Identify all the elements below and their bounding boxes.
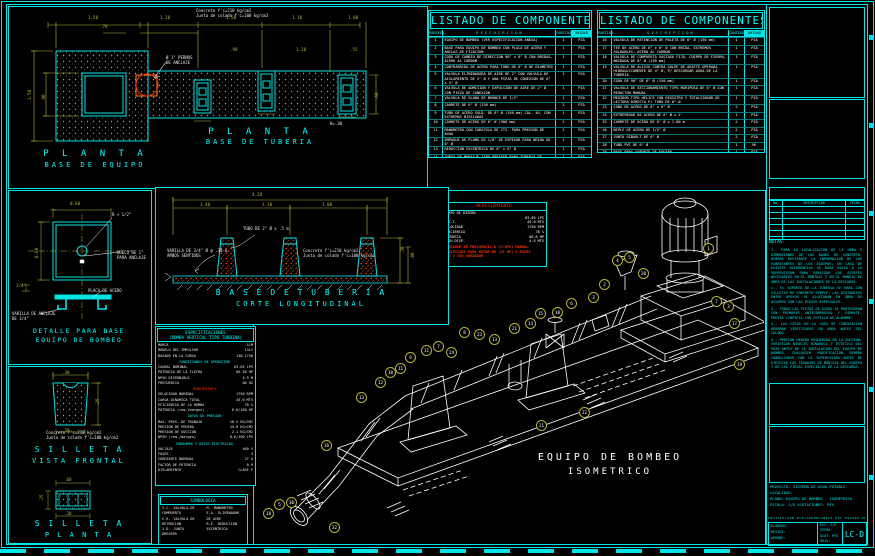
cell-partida: 18 xyxy=(598,55,612,64)
balloon-number: 8 xyxy=(463,330,466,335)
balloon-callout: 10 xyxy=(385,367,396,378)
notes-heading: NOTAS: xyxy=(769,240,785,245)
dimension-label: 1.10 xyxy=(292,15,302,20)
cell-partida: 20 xyxy=(598,79,612,86)
annotation-label: DE 3/4" xyxy=(12,317,29,322)
annotation-label: AMBOS SENTIDOS xyxy=(167,254,201,259)
spec-label: POTENCIA (req./margen) xyxy=(158,408,204,413)
dimension-label: .30 xyxy=(62,428,70,433)
dimension-label: .70 xyxy=(400,246,405,254)
notes-list: 1.- PARA LA LOCALIZACION DE LA OBRA Y DI… xyxy=(768,246,865,380)
sidebar-box-3 xyxy=(769,383,865,425)
corte-title: B A S E D E T U B E R I A xyxy=(155,288,447,297)
balloon-number: 13 xyxy=(492,337,497,342)
balloon-callout: 18 xyxy=(263,508,274,519)
balloon-number: 11 xyxy=(398,366,403,371)
balloon-callout: 7 xyxy=(711,296,722,307)
rev-col-desc: DESCRIPCION xyxy=(783,201,846,206)
logo-box-1 xyxy=(769,7,865,98)
dimension-label: .25 xyxy=(39,494,44,502)
rev-fecha xyxy=(846,237,864,240)
cell-partida: 1 xyxy=(429,38,443,45)
cell-unidad: PZA xyxy=(745,105,764,112)
rev-desc xyxy=(783,225,846,230)
balloon-callout: 16 xyxy=(321,440,332,451)
rev-desc xyxy=(783,213,846,218)
balloon-callout: 24 xyxy=(446,347,457,358)
cell-unidad: PZA xyxy=(745,79,764,86)
cell-unidad: PZA xyxy=(572,55,591,64)
table-row: 8 CARRETE DE 6" Ø (150 mm) 2 PZA xyxy=(429,102,591,110)
balloon-callout: 1 xyxy=(703,243,714,254)
cell-unidad: PZA xyxy=(572,38,591,45)
silleta-front-subtitle: VISTA FRONTAL xyxy=(8,457,150,465)
component-table-2: LISTADO DE COMPONENTES PARTIDA D E S C R… xyxy=(597,10,765,153)
cell-unidad: PZA xyxy=(745,113,764,120)
table-row: 14 JUNTA DE MONTAJE TIPO DRESSER PARA TU… xyxy=(429,154,591,158)
table-row: 16 VALVULA DE RETENCION DE PALETA DE 6" … xyxy=(598,37,764,45)
revestimiento-rows: PUNTO DE DISEÑO Q 63.65 LPS C.D.T. 45.0 … xyxy=(442,211,546,244)
cell-descripcion: JUNTA GIBAULT DE 6" Ø xyxy=(612,135,729,142)
annotation-label: TUBO DE 2" Ø x .5 m. xyxy=(243,227,291,232)
table-row: 17 TEE DE ACERO DE 6" x 6" Ø CON BRIDA, … xyxy=(598,45,764,55)
table-row: 12 EMPAQUE DE PLOMO DE 1/8" DE ESPESOR P… xyxy=(429,137,591,147)
cell-cantidad: 2 xyxy=(729,128,745,135)
legend-abbr: J.D. xyxy=(162,527,170,531)
balloon-number: 19 xyxy=(737,362,742,367)
note-paragraph: 5.- PRESION MINIMA REQUERIDA EN LA SUCCI… xyxy=(771,338,862,370)
cell-cantidad: 1 xyxy=(729,86,745,95)
table-row: 13 REDUCCION EXCENTRICA DE 8" x 6" Ø 1 P… xyxy=(429,146,591,154)
title-block: ELABORO:REVISO:APROBO: ESC: S/EFECHA:ACO… xyxy=(768,522,867,546)
silleta-front-title: S I L L E T A xyxy=(8,445,150,454)
balloon-number: 1 xyxy=(707,246,710,251)
balloon-callout: 10 xyxy=(552,307,563,318)
balloon-callout: 23 xyxy=(474,329,485,340)
balloon-callout: 13 xyxy=(489,334,500,345)
legend-row: V.C. VALVULA DE COMPUERTA xyxy=(160,506,202,517)
spec-label: CONSUMOS Y DATOS ELECTRICOS xyxy=(176,442,233,447)
cell-cantidad: 1 xyxy=(556,138,572,147)
cell-cantidad: 1 xyxy=(556,72,572,85)
dimension-label: .90 xyxy=(230,47,238,52)
detalle-subtitle: EQUIPO DE BOMBEO xyxy=(8,336,150,344)
annotation-label: R + 1/2" xyxy=(112,213,131,218)
revision-row xyxy=(770,218,864,224)
spec-value: 13B-1750 xyxy=(236,354,253,359)
cell-descripcion: VALVULA ELIMINADORA DE AIRE DE 2" CON VA… xyxy=(443,72,556,85)
cell-partida: 11 xyxy=(429,128,443,137)
legend-abbr: M. xyxy=(207,506,211,510)
annotation-label: H=.30 xyxy=(330,122,342,127)
cell-descripcion: CONO DE ACERO DE 8" x 6" Ø xyxy=(612,105,729,112)
table-row: 10 CARRETE DE ACERO DE 6" Ø (900 mm) 2 P… xyxy=(429,119,591,127)
note-paragraph: 2.- EL SOPORTE DE LA TUBERIA SE HARA CON… xyxy=(771,286,862,304)
col-partida: PARTIDA xyxy=(429,30,443,36)
cell-partida: 23 xyxy=(598,105,612,112)
revision-row xyxy=(770,212,864,218)
rev-no xyxy=(770,219,783,224)
balloon-number: 4 xyxy=(616,258,619,263)
legend-panel: SIMBOLOGIA V.C. VALVULA DE COMPUERTA V.R… xyxy=(158,494,248,545)
cell-cantidad: 1 xyxy=(729,38,745,45)
legend-row: J.D. JUNTA DRESSER xyxy=(160,527,202,538)
project-info-line: ESCALA: S/E ACOTACIONES: MTS xyxy=(768,502,865,508)
cell-descripcion: TUBO PVC DE 6" Ø xyxy=(612,143,729,150)
cell-descripcion: EMPAQUE DE PLOMO DE 1/8" DE ESPESOR PARA… xyxy=(443,138,556,147)
revestimiento-title: REVESTIMIENTO xyxy=(442,203,546,211)
balloon-callout: 20 xyxy=(638,268,649,279)
cell-partida: 25 xyxy=(598,120,612,127)
cell-unidad: PZA xyxy=(745,86,764,95)
sidebar-header-bar xyxy=(769,187,865,200)
revision-table: No. DESCRIPCION FECHA xyxy=(769,200,865,240)
rev-fecha xyxy=(846,213,864,218)
cell-partida: 28 xyxy=(598,143,612,150)
balloon-number: 7 xyxy=(715,299,718,304)
cell-cantidad: 1 xyxy=(556,38,572,45)
legend-text: MANOMETRO xyxy=(214,506,233,510)
table-row: 22 MEDIDOR TIPO HELICE CON REGISTRO Y TO… xyxy=(598,95,764,105)
dimension-label: 1.50 xyxy=(226,15,236,20)
balloon-number: 12 xyxy=(378,380,383,385)
logo-box-2 xyxy=(769,99,865,179)
legend-row: E.A. ELIMINADOR DE AIRE xyxy=(205,511,247,522)
revest-value: 4.5 MTS xyxy=(529,239,544,244)
note-paragraph: 1.- PARA LA LOCALIZACION DE LA OBRA Y DI… xyxy=(771,248,862,284)
cell-cantidad: 1 xyxy=(729,55,745,64)
title-block-row: APROBO: xyxy=(769,535,817,541)
table-row: 21 VALVULA DE SECCIONAMIENTO TIPO MARIPO… xyxy=(598,85,764,95)
spec-label: FRECUENCIA xyxy=(158,381,179,386)
component-table-2-body: 16 VALVULA DE RETENCION DE PALETA DE 6" … xyxy=(598,37,764,153)
note-paragraph: 4.- LAS COTAS DE LA LOSA DE CIMENTACION … xyxy=(771,322,862,336)
table-row: 28 TUBO PVC DE 6" Ø 1 ML xyxy=(598,142,764,150)
balloon-number: 2 xyxy=(603,282,606,287)
annotation-label: PARA ANCLAJE xyxy=(117,256,146,261)
cell-unidad: PZA xyxy=(745,55,764,64)
spec-label: RENDIMIENTO xyxy=(193,387,216,392)
discipline-strip: INSTALACION ELECTROMECANICA DEL EQUIPO D… xyxy=(768,516,865,520)
cell-descripcion: CARRETE DE ACERO DE 6" Ø x 1.00 m xyxy=(612,120,729,127)
cell-partida: 16 xyxy=(598,38,612,45)
dimension-label: .90 xyxy=(41,94,46,102)
table-row: 7 VALVULA DE GLOBO DE BRONCE DE 1/2" 1 P… xyxy=(429,95,591,103)
table-row: 2 BASE PARA EQUIPO DE BOMBEO CON PLACA D… xyxy=(429,45,591,55)
cell-partida: 22 xyxy=(598,96,612,105)
component-table-1: LISTADO DE COMPONENTES PARTIDA D E S C R… xyxy=(428,10,592,158)
cell-unidad: PZA xyxy=(572,128,591,137)
legend-abbr: V.C. xyxy=(162,506,170,510)
cell-unidad: PZA xyxy=(745,65,764,78)
rev-col-fecha: FECHA xyxy=(846,201,864,206)
spec-row: POTENCIA (req./margen) 8.6/100 HP xyxy=(156,408,255,413)
table-row: 26 NIPLE DE ACERO DE 1/2" Ø 2 PZA xyxy=(598,127,764,135)
balloon-number: 3 xyxy=(727,304,730,309)
cell-cantidad: 2 xyxy=(729,135,745,142)
rev-no xyxy=(770,231,783,236)
cell-unidad: PZA xyxy=(572,65,591,72)
rev-desc xyxy=(783,207,846,212)
cell-descripcion: MEDIDOR TIPO HELICE CON REGISTRO Y TOTAL… xyxy=(612,96,729,105)
balloon-number: 32 xyxy=(332,525,337,530)
cell-partida: 17 xyxy=(598,46,612,55)
dimension-label: .20 xyxy=(64,511,72,516)
dimension-label: .60 xyxy=(64,477,72,482)
cell-cantidad: 1 xyxy=(556,86,572,95)
cell-partida: 8 xyxy=(429,103,443,110)
annotation-label: PLACA DE ACERO xyxy=(88,289,122,294)
legend-row: V.R. VALVULA DE RETENCION xyxy=(160,517,202,528)
cell-descripcion: VALVULA DE RETENCION DE PALETA DE 6" Ø (… xyxy=(612,38,729,45)
spec-value: 8.6/100 LPS xyxy=(230,435,253,440)
legend-row: R.E. REDUCCION EXCENTRICA xyxy=(205,522,247,533)
cell-cantidad: 2 xyxy=(556,128,572,137)
spec-row: AISLAMIENTO CLASE F xyxy=(156,468,255,473)
dimension-label: 3/4" xyxy=(16,283,26,288)
balloon-number: 13 xyxy=(359,395,364,400)
annotation-label: Junta de colado f'c=100 kg/cm2 xyxy=(303,254,375,259)
revision-row xyxy=(770,206,864,212)
balloon-callout: 15 xyxy=(535,308,546,319)
balloon-callout: 21 xyxy=(509,323,520,334)
cell-unidad: PZA xyxy=(572,103,591,110)
balloon-callout: 32 xyxy=(329,522,340,533)
title-block-left: ELABORO:REVISO:APROBO: xyxy=(769,523,818,545)
revest-warning: VARIADOR DE FRECUENCIA A (V/OPS) MANUALM… xyxy=(442,244,546,259)
table-row: 23 CONO DE ACERO DE 8" x 6" Ø 2 PZA xyxy=(598,104,764,112)
annotation-label: DE ANCLAJE xyxy=(166,61,190,66)
cell-partida: 3 xyxy=(429,55,443,64)
isometric-title: EQUIPO DE BOMBEO xyxy=(455,452,765,463)
dimension-label: .70 xyxy=(100,24,108,29)
planta-equipo-subtitle: BASE DE EQUIPO xyxy=(10,161,180,169)
cell-partida: 19 xyxy=(598,65,612,78)
cell-partida: 24 xyxy=(598,113,612,120)
cell-cantidad: 1 xyxy=(729,143,745,150)
title-block-mid: ESC: S/EFECHA:ACOT: MTSHOJA: xyxy=(818,523,843,545)
balloon-number: 3 xyxy=(592,295,595,300)
dimension-label: .30 xyxy=(62,370,70,375)
cell-unidad: PZA xyxy=(572,138,591,147)
cell-cantidad: 1 xyxy=(556,111,572,120)
sheet-code: LC-D xyxy=(843,523,866,545)
dimension-label: 1.10 xyxy=(296,47,306,52)
cell-unidad: PZA xyxy=(572,120,591,127)
cell-partida: 27 xyxy=(598,135,612,142)
rev-desc xyxy=(783,237,846,240)
balloon-callout: 13 xyxy=(356,392,367,403)
balloon-callout: 7 xyxy=(433,341,444,352)
rev-fecha xyxy=(846,219,864,224)
legend-abbr: E.A. xyxy=(207,511,215,515)
revision-row xyxy=(770,224,864,230)
balloon-callout: 12 xyxy=(375,377,386,388)
balloon-callout: 3 xyxy=(588,292,599,303)
table-row: 19 VALVULA DE ALIVIO CONTRA GOLPE DE ARI… xyxy=(598,64,764,78)
cell-cantidad: 1 xyxy=(556,147,572,154)
cell-descripcion: VALVULA DE ADMISION Y EXPULSION DE AIRE … xyxy=(443,86,556,95)
rev-fecha xyxy=(846,225,864,230)
col-unidad: UNIDAD xyxy=(745,30,764,36)
cell-cantidad: 2 xyxy=(729,105,745,112)
annotation-label: Junta de colado f'c=100 kg/cm2 xyxy=(46,436,118,441)
cell-descripcion: EXTREMIDAD DE ACERO DE 6" Ø x 2' xyxy=(612,113,729,120)
cell-partida: 26 xyxy=(598,128,612,135)
cell-descripcion: CODO DE CAMBIO DE DIRECCION 90° x 6" Ø C… xyxy=(443,55,556,64)
cell-descripcion: VALVULA DE COMPUERTA VASTAGO FIJO, CUERP… xyxy=(612,55,729,64)
table-row: 3 CODO DE CAMBIO DE DIRECCION 90° x 6" Ø… xyxy=(429,54,591,64)
cell-partida: 14 xyxy=(429,155,443,158)
cell-descripcion: EQUIPO DE BOMBEO (VER ESPECIFICACION ANE… xyxy=(443,38,556,45)
table-row: 5 VALVULA ELIMINADORA DE AIRE DE 2" CON … xyxy=(429,71,591,85)
cell-unidad: PZA xyxy=(745,135,764,142)
balloon-number: 9 xyxy=(409,355,412,360)
balloon-callout: 17 xyxy=(729,318,740,329)
component-table-2-header: PARTIDA D E S C R I P C I O N CANTIDAD U… xyxy=(598,30,764,37)
cell-descripcion: REDUCCION EXCENTRICA DE 8" x 6" Ø xyxy=(443,147,556,154)
legend-abbr: V.R. xyxy=(162,517,170,521)
cell-unidad: PZA xyxy=(572,72,591,85)
cell-cantidad: 2 xyxy=(729,120,745,127)
rev-no xyxy=(770,213,783,218)
table-row: 6 VALVULA DE ADMISION Y EXPULSION DE AIR… xyxy=(429,85,591,95)
balloon-number: 10 xyxy=(555,310,560,315)
detalle-title: DETALLE PARA BASE xyxy=(8,327,150,335)
dimension-label: .55 xyxy=(350,47,358,52)
spec-panel: ESPECIFICACIONES(BOMBA VERTICAL TIPO TUR… xyxy=(155,326,256,486)
cell-descripcion: NIPLE DE ACERO DE 1/2" Ø xyxy=(612,128,729,135)
silleta-plan-title: S I L L E T A xyxy=(8,519,150,528)
cell-unidad: PZA xyxy=(745,150,764,153)
cell-cantidad: 1 xyxy=(729,150,745,153)
spec-value: 8.6/100 HP xyxy=(232,408,253,413)
cell-descripcion: VALVULA DE SECCIONAMIENTO TIPO MARIPOSA … xyxy=(612,86,729,95)
balloon-callout: 2 xyxy=(599,279,610,290)
dimension-label: .80 xyxy=(410,252,415,260)
balloon-callout: 5 xyxy=(274,499,285,510)
cell-unidad: PZA xyxy=(572,147,591,154)
right-tick-strip xyxy=(869,35,873,515)
col-cantidad: CANTIDAD xyxy=(729,30,745,36)
note-paragraph: 3.- TODAS LAS PIEZAS DE ACERO SE PROTEGE… xyxy=(771,307,862,321)
balloon-number: 5 xyxy=(628,255,631,260)
revestimiento-panel: REVESTIMIENTO PUNTO DE DISEÑO Q 63.65 LP… xyxy=(441,202,547,267)
balloon-callout: 30 xyxy=(286,497,297,508)
balloon-number: 17 xyxy=(732,321,737,326)
rev-fecha xyxy=(846,231,864,236)
balloon-callout: 11 xyxy=(395,363,406,374)
component-table-2-title: LISTADO DE COMPONENTES xyxy=(599,12,763,29)
col-descripcion: D E S C R I P C I O N xyxy=(612,30,729,36)
balloon-number: 10 xyxy=(388,370,393,375)
cell-unidad: PZA xyxy=(745,46,764,55)
cell-partida: 12 xyxy=(429,138,443,147)
cell-unidad: ML xyxy=(745,143,764,150)
spec-row: FRECUENCIA 60 HZ xyxy=(156,381,255,386)
legend-title: SIMBOLOGIA xyxy=(160,496,246,505)
dimension-label: 4.20 xyxy=(252,192,262,197)
title-block-row: HOJA: xyxy=(818,539,842,544)
component-table-1-title: LISTADO DE COMPONENTES xyxy=(430,12,590,29)
planta-equipo-title: P L A N T A xyxy=(10,149,180,159)
cell-cantidad: 1 xyxy=(729,79,745,86)
cell-cantidad: 1 xyxy=(729,113,745,120)
cell-unidad: PZA xyxy=(572,155,591,158)
balloon-callout: 3 xyxy=(723,301,734,312)
balloon-number: 16 xyxy=(324,443,329,448)
cell-cantidad: 1 xyxy=(556,155,572,158)
cell-descripcion: CODO DE 90° DE 6" Ø (150 mm) xyxy=(612,79,729,86)
cell-unidad: PZA xyxy=(572,46,591,55)
cell-unidad: PZA xyxy=(572,111,591,120)
cell-cantidad: 1 xyxy=(556,46,572,55)
cell-cantidad: 1 xyxy=(556,65,572,72)
table-row: 11 MANOMETRO CON CARATULA DE CTS. PARA P… xyxy=(429,127,591,137)
rev-no xyxy=(770,207,783,212)
revision-header: No. DESCRIPCION FECHA xyxy=(770,201,864,206)
balloon-number: 22 xyxy=(582,410,587,415)
cad-sheet: LISTADO DE COMPONENTES PARTIDA D E S C R… xyxy=(0,0,875,556)
cell-unidad: PZA xyxy=(572,96,591,103)
dimension-label: 0.60 xyxy=(34,248,39,258)
cell-unidad: PZA xyxy=(745,120,764,127)
balloon-callout: 21 xyxy=(536,420,547,431)
cell-unidad: PZA xyxy=(745,128,764,135)
project-info: PROYECTO: SISTEMA DE AGUA POTABLELOCALID… xyxy=(768,484,865,508)
table-row: 25 CARRETE DE ACERO DE 6" Ø x 1.00 m 2 P… xyxy=(598,119,764,127)
balloon-number: 30 xyxy=(289,500,294,505)
spec-label: AISLAMIENTO xyxy=(158,468,181,473)
cell-cantidad: 1 xyxy=(556,96,572,103)
table-row: 24 EXTREMIDAD DE ACERO DE 6" Ø x 2' 1 PZ… xyxy=(598,112,764,120)
dimension-label: 1.10 xyxy=(262,202,272,207)
balloon-callout: 14 xyxy=(525,318,536,329)
cell-descripcion: BASE PARA EQUIPO DE BOMBEO CON PLACA DE … xyxy=(443,46,556,55)
legend-abbr: R.E. xyxy=(207,522,215,526)
balloon-callout: 9 xyxy=(405,352,416,363)
cell-partida: 2 xyxy=(429,46,443,55)
table-row: 4 CONTRABRIDA DE ACERO PARA TUBO DE 6" Ø… xyxy=(429,64,591,72)
cell-descripcion: CARRETE DE 6" Ø (150 mm) xyxy=(443,103,556,110)
dimension-label: 1.50 xyxy=(88,15,98,20)
balloon-number: 24 xyxy=(449,350,454,355)
planta-tuberia-title: P L A N T A xyxy=(155,127,365,137)
dimension-label: 0.60 xyxy=(70,201,80,206)
rev-no xyxy=(770,225,783,230)
rev-desc xyxy=(783,219,846,224)
spec-row: BASADO EN LA CURVA 13B-1750 xyxy=(156,354,255,359)
table-row: 9 TUBO DE ACERO SOLD. DE 6" Ø (150 mm) C… xyxy=(429,110,591,120)
balloon-callout: 11 xyxy=(421,345,432,356)
revision-row xyxy=(770,230,864,236)
table-row: 18 VALVULA DE COMPUERTA VASTAGO FIJO, CU… xyxy=(598,54,764,64)
col-descripcion: D E S C R I P C I O N xyxy=(443,30,556,36)
table-row: 27 JUNTA GIBAULT DE 6" Ø 2 PZA xyxy=(598,134,764,142)
table-row: 1 EQUIPO DE BOMBEO (VER ESPECIFICACION A… xyxy=(429,37,591,45)
spec-row: NPSH (req./margen) 8.6/100 LPS xyxy=(156,435,255,440)
balloon-callout: 5 xyxy=(624,252,635,263)
cell-descripcion: BASE PARA SOPORTE DE EQUIPO xyxy=(612,150,729,153)
balloon-number: 23 xyxy=(477,332,482,337)
balloon-number: 7 xyxy=(437,344,440,349)
legend-items: V.C. VALVULA DE COMPUERTA V.R. VALVULA D… xyxy=(159,506,247,538)
cell-descripcion: VALVULA DE ALIVIO CONTRA GOLPE DE ARIETE… xyxy=(612,65,729,78)
dimension-label: 1.00 xyxy=(322,202,332,207)
cell-descripcion: TEE DE ACERO DE 6" x 6" Ø CON BRIDA, EXT… xyxy=(612,46,729,55)
cell-cantidad: 1 xyxy=(556,55,572,64)
dimension-label: .60 xyxy=(374,92,379,100)
